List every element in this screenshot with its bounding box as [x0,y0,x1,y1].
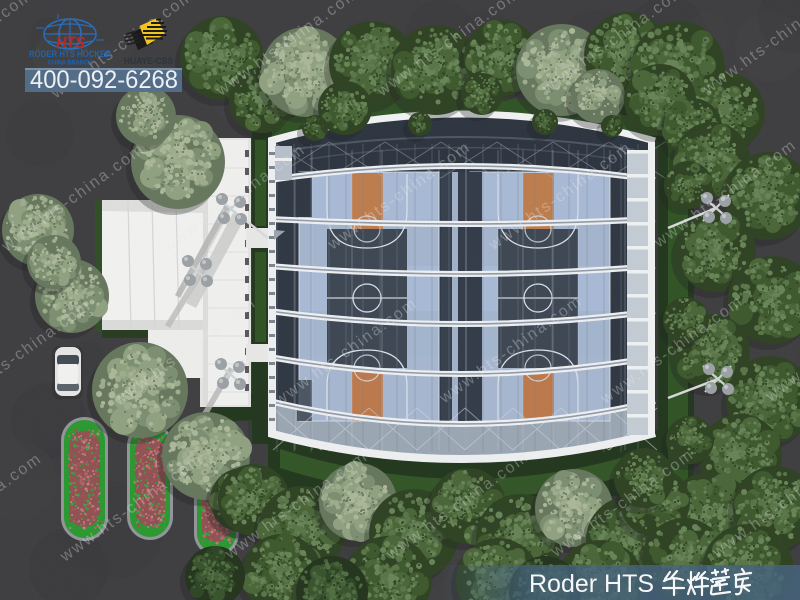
svg-text:Roder HTS: Roder HTS [529,570,654,598]
svg-text:RÖDER HTS HÖCKER: RÖDER HTS HÖCKER [29,49,111,59]
svg-text:HUAYE-CSS: HUAYE-CSS [124,56,173,66]
svg-text:400-092-6268: 400-092-6268 [30,66,178,94]
